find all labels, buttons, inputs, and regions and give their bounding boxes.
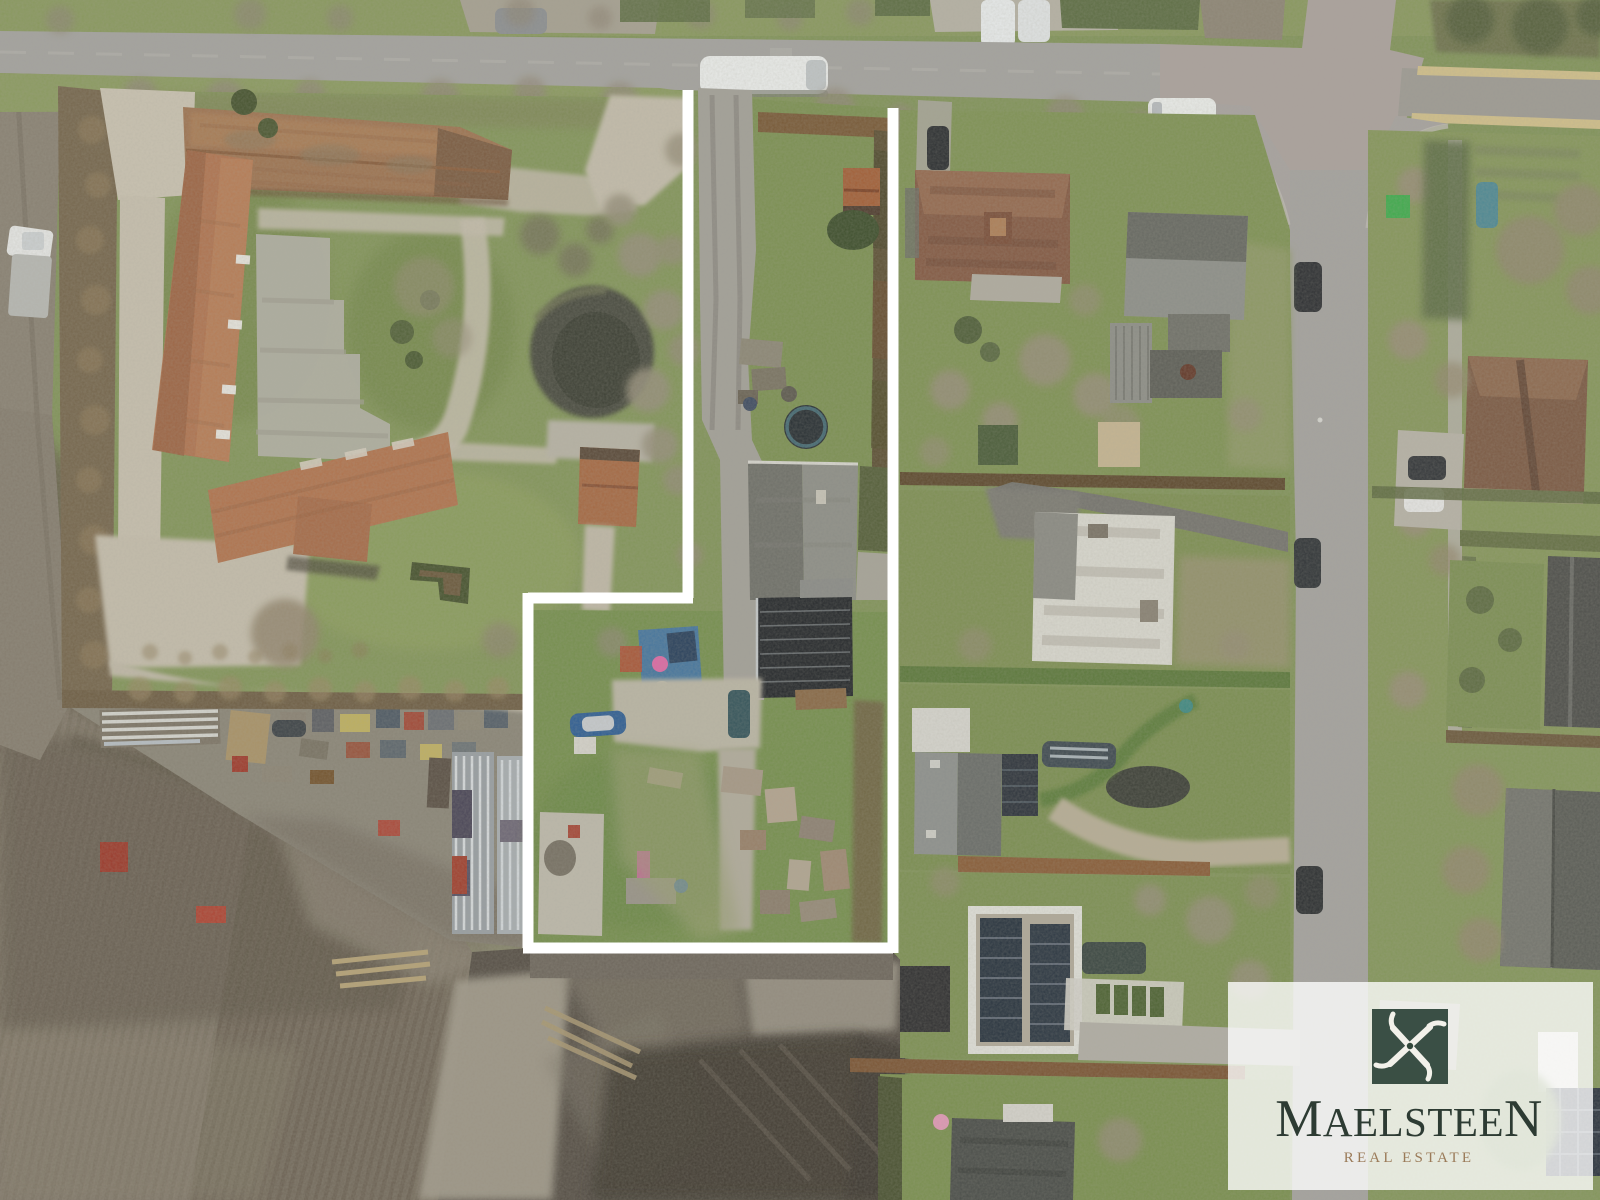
svg-text:MAELSTEEN: MAELSTEEN: [1275, 1090, 1543, 1148]
svg-text:REAL ESTATE: REAL ESTATE: [1344, 1150, 1475, 1166]
